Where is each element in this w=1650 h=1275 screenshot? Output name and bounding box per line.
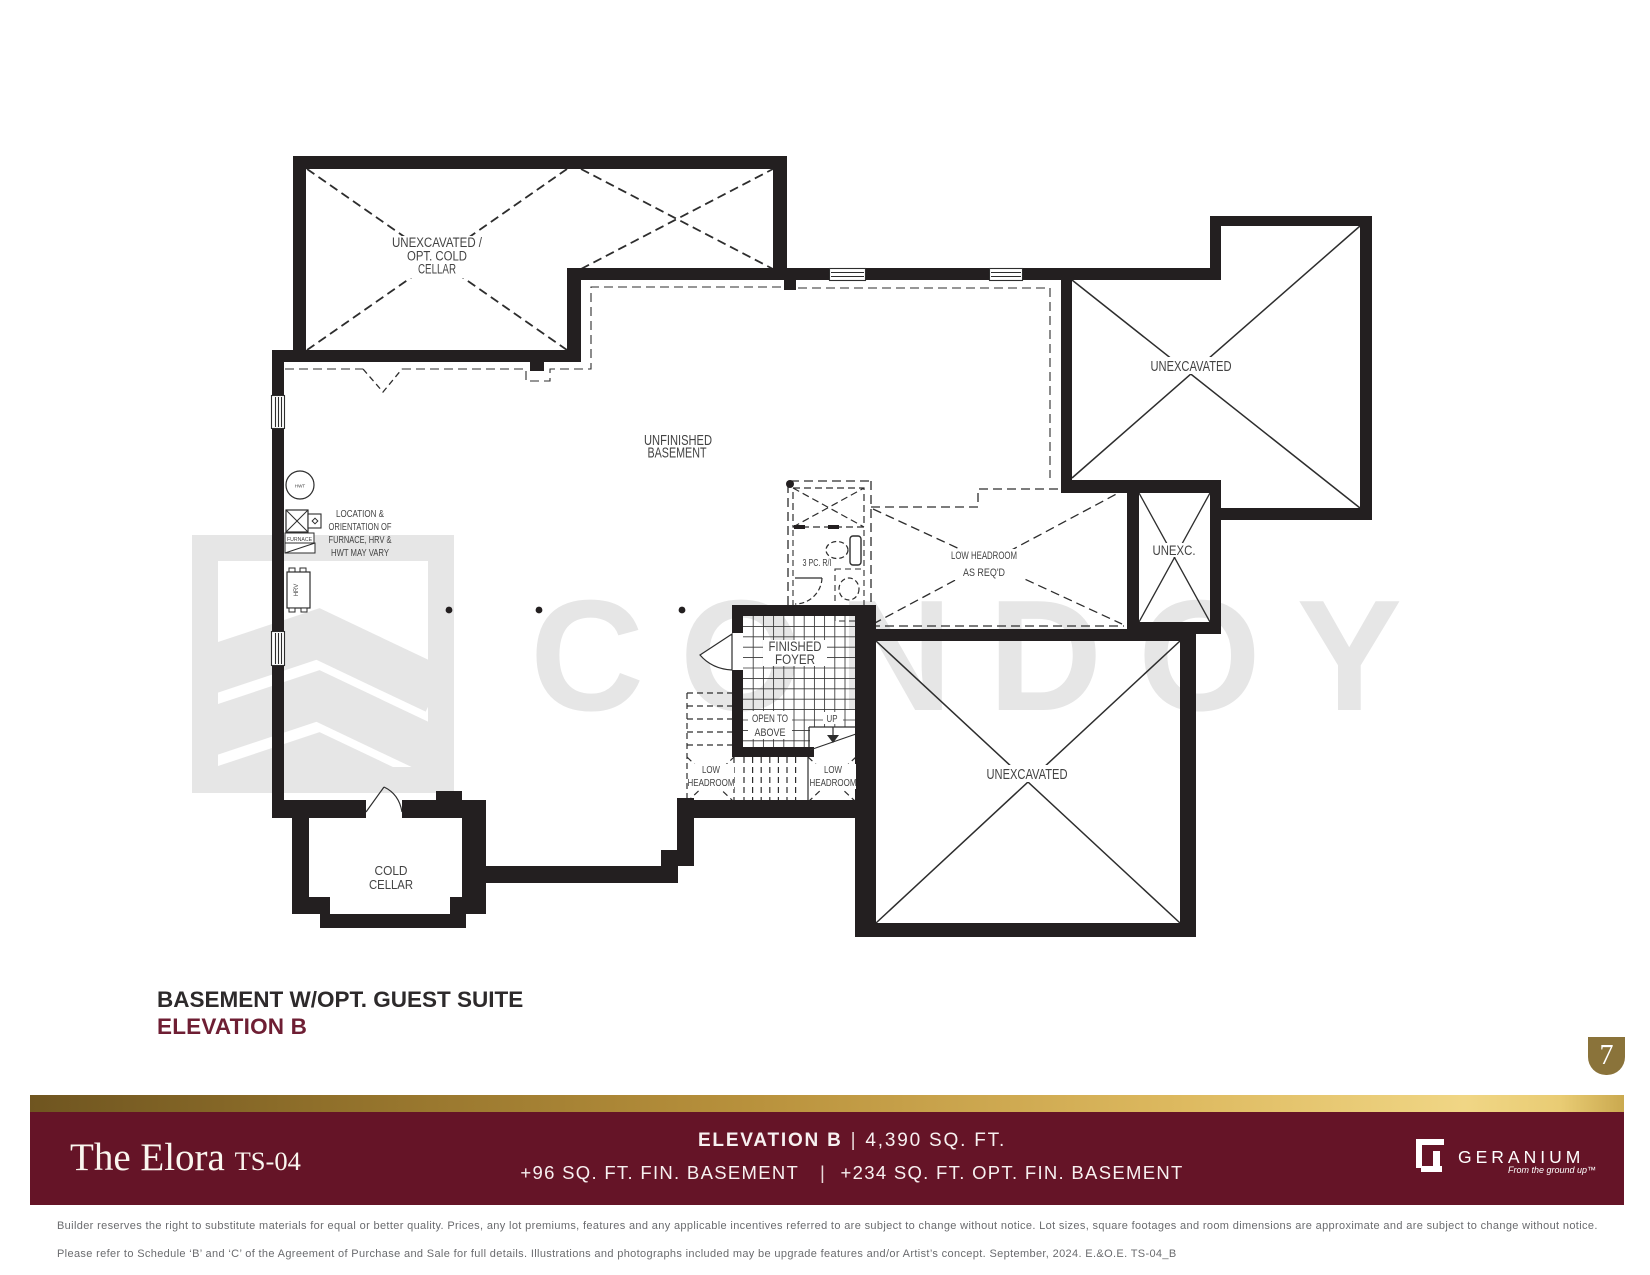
- svg-text:CELLAR: CELLAR: [369, 878, 413, 892]
- svg-text:3 PC. R/I: 3 PC. R/I: [803, 557, 832, 569]
- svg-text:LOW: LOW: [702, 764, 720, 776]
- svg-text:HWT MAY VARY: HWT MAY VARY: [331, 547, 389, 559]
- svg-text:UNEXCAVATED: UNEXCAVATED: [987, 766, 1068, 783]
- svg-text:BASEMENT: BASEMENT: [648, 446, 707, 462]
- svg-text:COLD: COLD: [375, 864, 408, 878]
- svg-text:HEADROOM: HEADROOM: [688, 777, 735, 789]
- svg-text:UP: UP: [827, 713, 838, 725]
- svg-text:HWT: HWT: [295, 484, 306, 489]
- svg-text:ORIENTATION OF: ORIENTATION OF: [329, 521, 392, 533]
- svg-text:FOYER: FOYER: [775, 652, 815, 667]
- svg-text:UNEXCAVATED: UNEXCAVATED: [1151, 358, 1232, 375]
- svg-text:CONDOY: CONDOY: [530, 568, 1402, 744]
- svg-text:UNEXC.: UNEXC.: [1153, 543, 1196, 558]
- svg-text:LOCATION &: LOCATION &: [336, 508, 384, 520]
- svg-text:CELLAR: CELLAR: [418, 262, 456, 278]
- svg-text:LOW HEADROOM: LOW HEADROOM: [951, 550, 1017, 562]
- svg-text:FURNACE, HRV &: FURNACE, HRV &: [329, 534, 392, 546]
- svg-text:OPEN TO: OPEN TO: [752, 713, 788, 725]
- svg-text:HRV: HRV: [294, 584, 300, 597]
- svg-text:AS REQ'D: AS REQ'D: [963, 567, 1005, 579]
- svg-text:LOW: LOW: [824, 764, 842, 776]
- svg-text:FURNACE: FURNACE: [287, 537, 313, 543]
- svg-text:HEADROOM: HEADROOM: [810, 777, 857, 789]
- svg-text:ABOVE: ABOVE: [755, 727, 786, 739]
